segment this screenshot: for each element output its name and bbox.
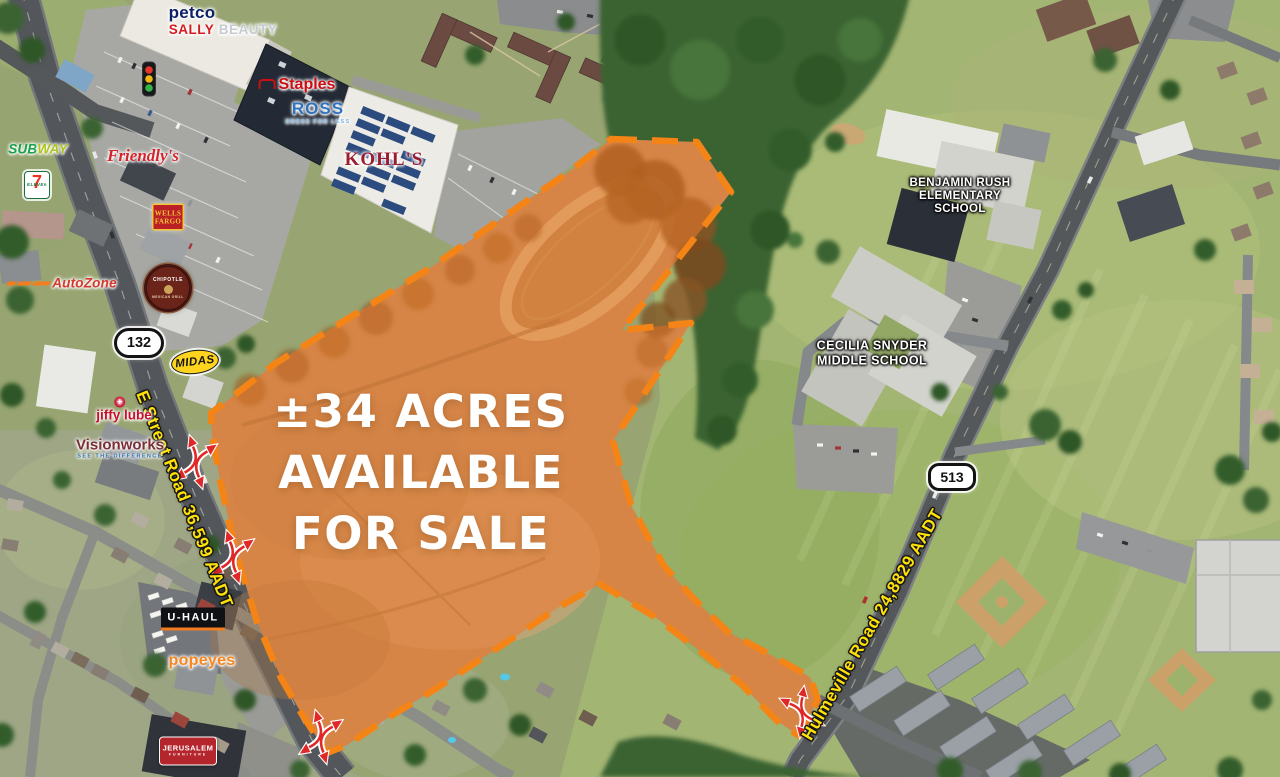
aerial-sale-map: ±34 ACRES AVAILABLE FOR SALE E Street Ro… bbox=[0, 0, 1280, 777]
traffic-light-icon bbox=[143, 62, 156, 96]
aerial-photo-background bbox=[0, 0, 1280, 777]
